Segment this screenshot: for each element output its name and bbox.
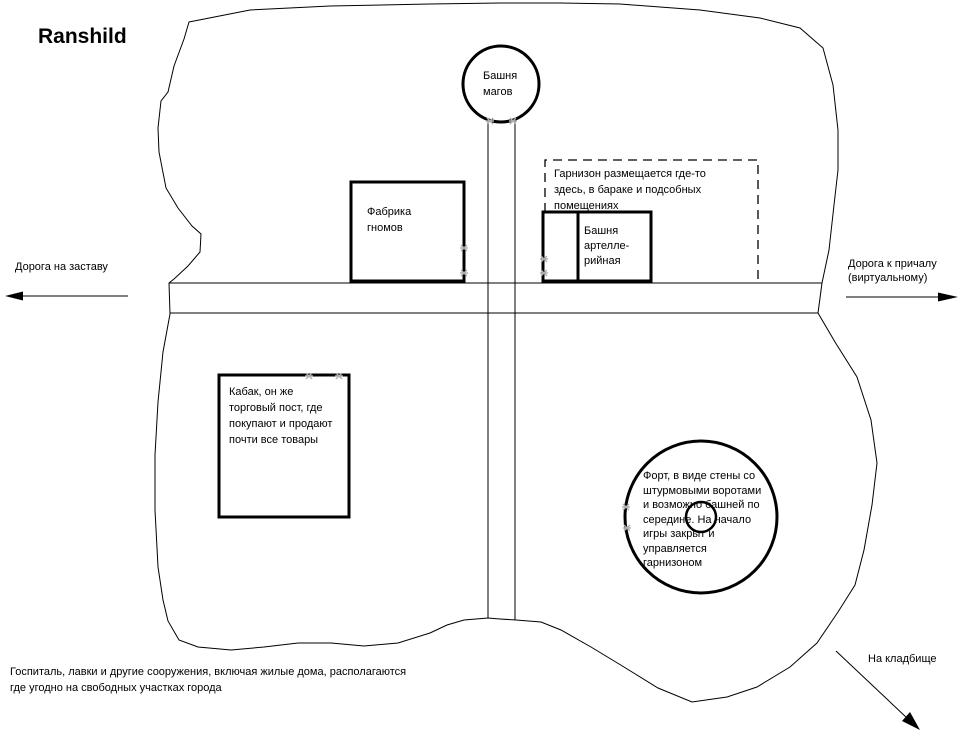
artillery-tower-label-line: Башня — [584, 225, 618, 237]
fort-label-line: гарнизоном — [643, 557, 702, 569]
mage-tower-label-line: магов — [483, 86, 513, 98]
artillery-tower-label-line: рийная — [584, 255, 621, 267]
garrison-note-label: Гарнизон размещается где-то здесь, в бар… — [554, 168, 706, 212]
tavern-label: Кабак, он же торговый пост, где покупают… — [229, 386, 332, 446]
mage-tower-label-line: Башня — [483, 70, 517, 82]
fort-label-line: штурмовыми воротами — [643, 485, 761, 497]
fort-label-line: середине. На начало — [643, 514, 751, 526]
artillery-tower-label: Башня артелле- рийная — [584, 225, 630, 267]
fort-label: Форт, в виде стены со штурмовыми воротам… — [643, 470, 761, 569]
footnote: Госпиталь, лавки и другие сооружения, вк… — [10, 666, 406, 694]
tavern-label-line: торговый пост, где — [229, 402, 323, 414]
east-road-label-line: (виртуальному) — [848, 272, 927, 284]
garrison-note-line: помещениях — [554, 200, 619, 212]
east-road-label-line: Дорога к причалу — [848, 258, 937, 270]
gnome-factory-label: Фабрика гномов — [367, 206, 412, 234]
tavern-label-line: почти все товары — [229, 434, 318, 446]
tavern-label-line: Кабак, он же — [229, 386, 293, 398]
garrison-note-line: здесь, в бараке и подсобных — [554, 184, 702, 196]
tavern-label-line: покупают и продают — [229, 418, 332, 430]
fort-label-line: и возможно башней по — [643, 499, 760, 511]
west-road-arrow — [5, 292, 128, 301]
artillery-tower-label-line: артелле- — [584, 240, 630, 252]
garrison-note-line: Гарнизон размещается где-то — [554, 168, 706, 180]
cemetery-arrowhead — [902, 712, 920, 730]
gnome-factory-label-line: Фабрика — [367, 206, 412, 218]
footnote-line: где угодно на свободных участках города — [10, 682, 223, 694]
footnote-line: Госпиталь, лавки и другие сооружения, вк… — [10, 666, 406, 678]
fort-label-line: Форт, в виде стены со — [643, 470, 755, 482]
west-arrowhead — [5, 292, 23, 301]
north-south-road — [488, 120, 515, 620]
cemetery-label: На кладбище — [868, 653, 937, 665]
mage-tower-circle — [463, 46, 539, 122]
fort-label-line: игры закрыт и — [643, 528, 714, 540]
page-title: Ranshild — [38, 25, 127, 48]
mage-tower-label: Башня магов — [483, 70, 517, 98]
city-boundary — [155, 3, 877, 702]
fort-label-line: управляется — [643, 543, 707, 555]
east-arrowhead — [938, 293, 958, 302]
map-canvas: Башня магов Фабрика гномов Гарнизон разм… — [0, 0, 963, 737]
west-road-label: Дорога на заставу — [15, 261, 108, 273]
east-road-label: Дорога к причалу (виртуальному) — [848, 258, 937, 284]
east-road-arrow — [846, 293, 958, 302]
east-west-road — [169, 283, 822, 313]
gnome-factory-label-line: гномов — [367, 222, 403, 234]
